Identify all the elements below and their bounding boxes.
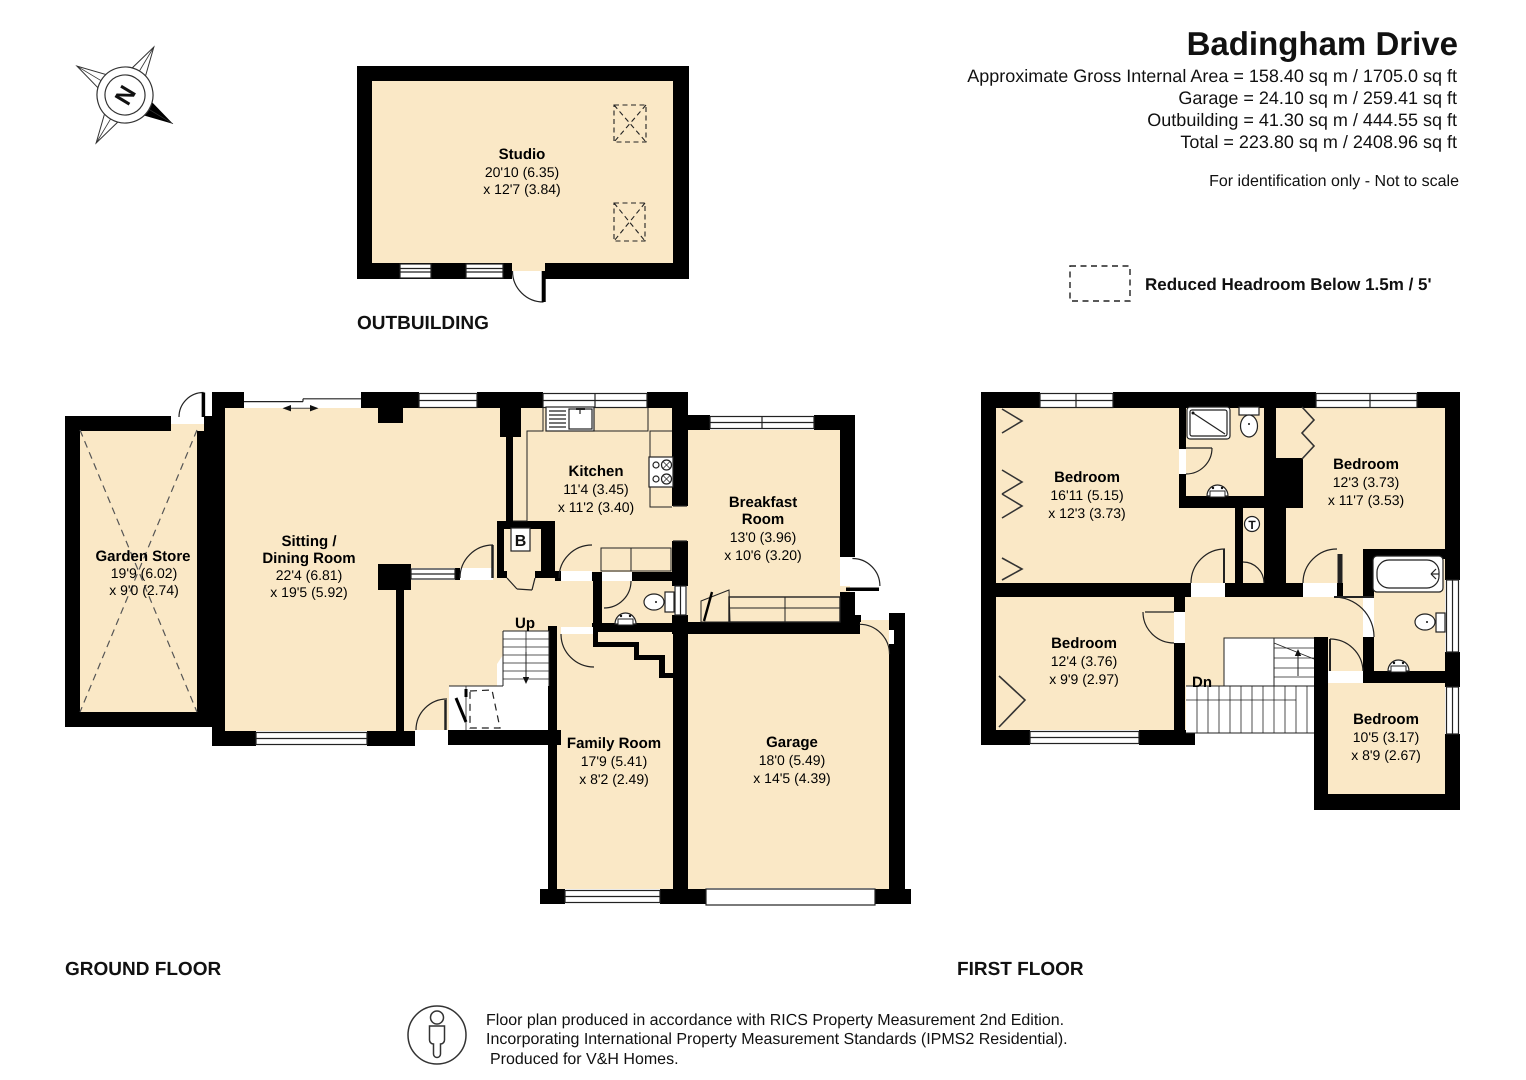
svg-text:16'11 (5.15): 16'11 (5.15) [1050,487,1123,503]
svg-text:13'0 (3.96): 13'0 (3.96) [730,529,797,545]
svg-text:x 9'9 (2.97): x 9'9 (2.97) [1049,671,1119,687]
svg-text:x 8'9 (2.67): x 8'9 (2.67) [1351,747,1421,763]
svg-text:x 10'6 (3.20): x 10'6 (3.20) [724,547,801,563]
svg-text:Floor plan produced in accorda: Floor plan produced in accordance with R… [486,1012,1064,1029]
svg-text:Kitchen: Kitchen [568,463,623,480]
svg-text:Breakfast: Breakfast [729,494,797,511]
svg-text:18'0 (5.49): 18'0 (5.49) [759,752,826,768]
svg-text:Garden Store: Garden Store [95,548,190,565]
svg-text:19'9 (6.02): 19'9 (6.02) [111,565,178,581]
svg-text:Family Room: Family Room [567,735,661,752]
svg-text:GROUND FLOOR: GROUND FLOOR [65,959,221,980]
svg-text:x 8'2 (2.49): x 8'2 (2.49) [579,771,649,787]
svg-text:Garage: Garage [766,734,818,751]
svg-text:Bedroom: Bedroom [1051,635,1117,652]
svg-text:Bedroom: Bedroom [1353,711,1419,728]
svg-text:Studio: Studio [499,146,546,163]
svg-text:Garage = 24.10 sq m / 259.41 s: Garage = 24.10 sq m / 259.41 sq ft [1178,88,1457,108]
svg-text:x 11'2 (3.40): x 11'2 (3.40) [558,499,634,515]
svg-text:Badingham Drive: Badingham Drive [1187,25,1458,62]
svg-text:22'4 (6.81): 22'4 (6.81) [276,567,343,583]
svg-text:Bedroom: Bedroom [1333,456,1399,473]
svg-text:Approximate Gross Internal Are: Approximate Gross Internal Area = 158.40… [967,66,1457,86]
svg-text:Dn: Dn [1192,674,1212,691]
svg-text:Produced for V&H Homes.: Produced for V&H Homes. [490,1051,679,1068]
svg-text:Incorporating International Pr: Incorporating International Property Mea… [486,1031,1068,1048]
svg-text:Room: Room [742,511,785,528]
svg-text:Bedroom: Bedroom [1054,469,1120,486]
svg-text:Total = 223.80 sq m / 2408.96: Total = 223.80 sq m / 2408.96 sq ft [1180,132,1457,152]
svg-text:x 14'5 (4.39): x 14'5 (4.39) [753,770,830,786]
svg-text:Sitting /: Sitting / [282,533,338,550]
svg-text:12'4 (3.76): 12'4 (3.76) [1051,653,1118,669]
svg-text:OUTBUILDING: OUTBUILDING [357,313,489,334]
svg-text:Reduced Headroom Below 1.5m /: Reduced Headroom Below 1.5m / 5' [1145,275,1432,294]
svg-text:B: B [515,533,527,550]
svg-text:Up: Up [515,615,535,632]
svg-text:12'3 (3.73): 12'3 (3.73) [1333,474,1400,490]
svg-text:FIRST FLOOR: FIRST FLOOR [957,959,1084,980]
svg-text:x 12'3 (3.73): x 12'3 (3.73) [1048,505,1125,521]
svg-text:T: T [1248,518,1256,532]
svg-text:Outbuilding = 41.30 sq m / 444: Outbuilding = 41.30 sq m / 444.55 sq ft [1147,110,1457,130]
svg-text:x 12'7 (3.84): x 12'7 (3.84) [483,181,560,197]
svg-text:x 9'0 (2.74): x 9'0 (2.74) [109,582,179,598]
svg-text:10'5 (3.17): 10'5 (3.17) [1353,729,1420,745]
svg-text:11'4 (3.45): 11'4 (3.45) [563,481,628,497]
svg-text:20'10 (6.35): 20'10 (6.35) [485,164,559,180]
svg-text:x 19'5 (5.92): x 19'5 (5.92) [270,584,347,600]
svg-text:17'9 (5.41): 17'9 (5.41) [581,753,648,769]
svg-text:For identification only - Not: For identification only - Not to scale [1209,173,1459,190]
svg-text:x 11'7 (3.53): x 11'7 (3.53) [1328,492,1404,508]
svg-text:Dining Room: Dining Room [262,550,355,567]
